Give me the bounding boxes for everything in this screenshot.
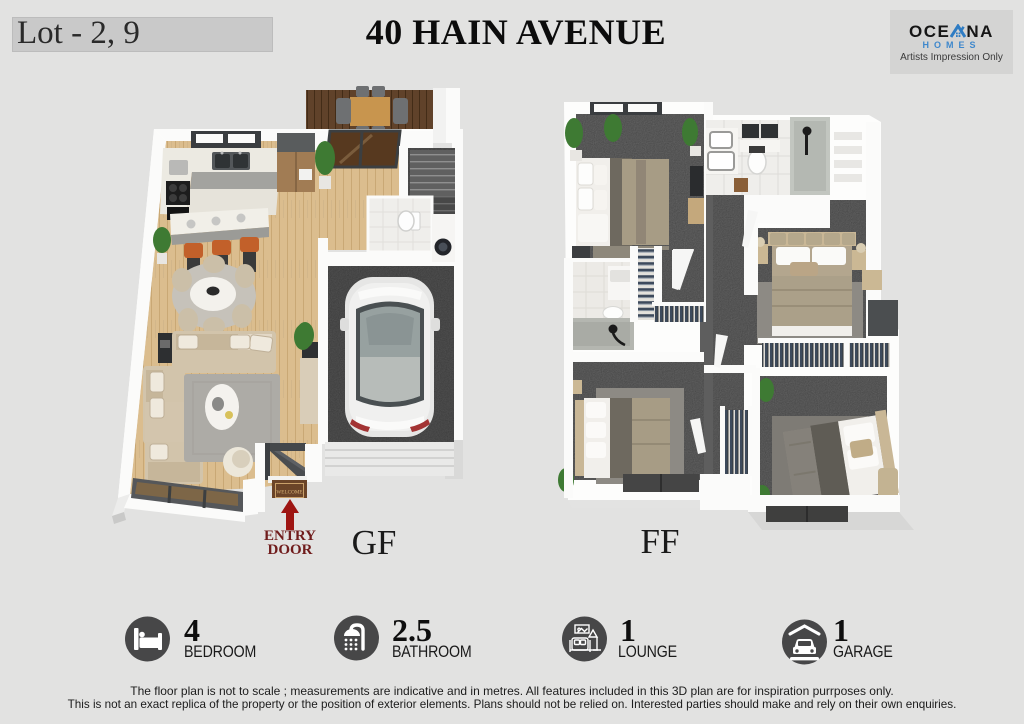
svg-text:WELCOME: WELCOME bbox=[276, 490, 302, 496]
